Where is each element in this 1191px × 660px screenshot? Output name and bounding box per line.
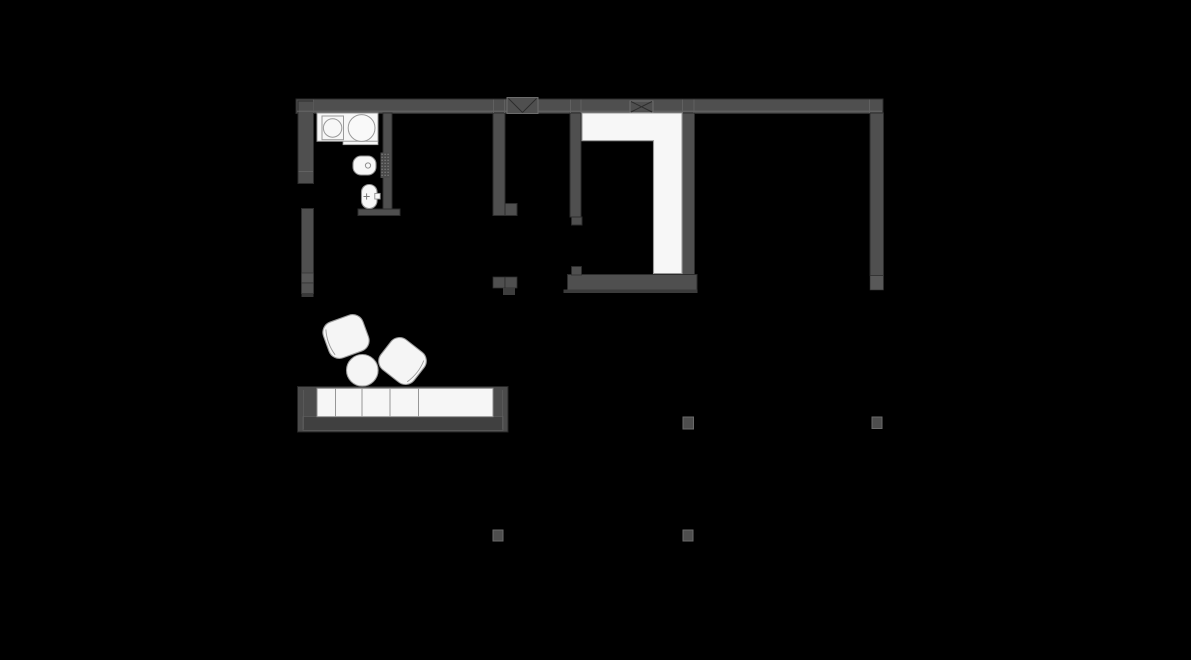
wardrobe-room-right-wall — [682, 113, 695, 276]
hallway-right-wall-foot — [572, 217, 583, 225]
washbasin — [348, 115, 375, 142]
wardrobe-room-bottom-wall — [568, 275, 698, 291]
right-exterior-wall-cap — [870, 276, 884, 291]
coffee-table — [347, 355, 379, 387]
toilet — [353, 156, 376, 175]
wardrobe-room-wall-knob — [572, 267, 582, 276]
tiled-strip — [381, 153, 390, 179]
sofa-base — [303, 417, 503, 431]
left-wall-end-block-a — [302, 273, 314, 283]
column-sw — [493, 530, 503, 541]
floor-plan-canvas — [0, 0, 1191, 660]
wardrobe-unit — [582, 113, 682, 274]
column-mid — [683, 417, 694, 429]
hallway-end-tab — [503, 288, 515, 295]
bathroom-south-wall — [358, 209, 400, 216]
hallway-left-wall-foot — [505, 204, 517, 216]
column-s — [683, 530, 693, 541]
hallway-end-block-a — [493, 277, 505, 288]
hallway-end-block-b — [505, 277, 517, 288]
wardrobe-room-bottom-lip — [564, 290, 698, 294]
bidet-faucet — [375, 193, 380, 199]
column-e — [872, 417, 882, 429]
hallway-right-wall — [570, 113, 581, 217]
left-wall-end-block-b — [302, 283, 314, 294]
armchair-2 — [374, 333, 430, 389]
vent-shaft-box-1 — [507, 98, 538, 114]
floor-plan-svg — [0, 0, 1191, 660]
sofa-cushions — [317, 388, 493, 416]
armchair-1 — [320, 311, 372, 361]
right-exterior-wall — [870, 113, 884, 276]
hallway-left-wall — [493, 113, 505, 216]
left-wall-end-stub — [302, 294, 314, 298]
